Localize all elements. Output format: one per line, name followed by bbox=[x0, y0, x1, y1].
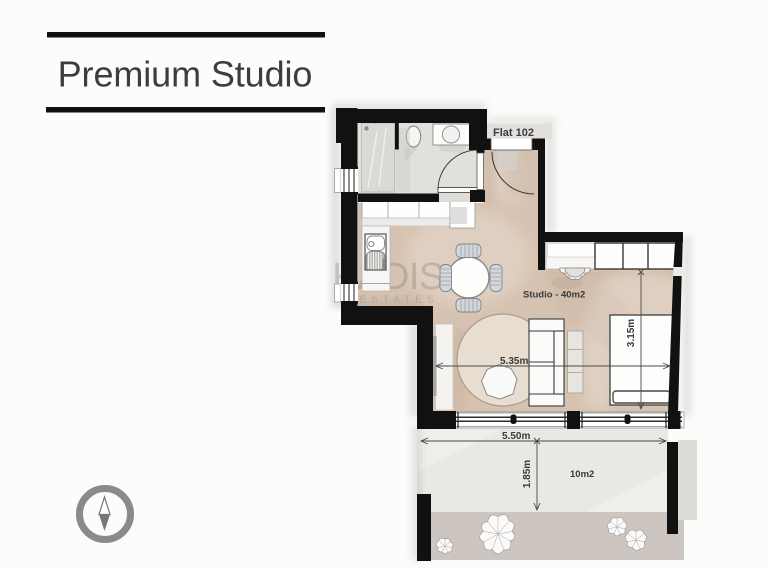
svg-text:1.85m: 1.85m bbox=[522, 460, 533, 488]
svg-text:Studio - 40m2: Studio - 40m2 bbox=[523, 290, 585, 301]
svg-text:5.50m: 5.50m bbox=[502, 431, 530, 442]
svg-text:Flat 102: Flat 102 bbox=[493, 127, 534, 139]
svg-text:3.15m: 3.15m bbox=[626, 319, 637, 347]
svg-text:ESTATES: ESTATES bbox=[359, 295, 438, 306]
svg-text:5.35m: 5.35m bbox=[500, 356, 528, 367]
svg-text:Premium Studio: Premium Studio bbox=[58, 54, 313, 95]
svg-text:10m2: 10m2 bbox=[570, 469, 594, 480]
